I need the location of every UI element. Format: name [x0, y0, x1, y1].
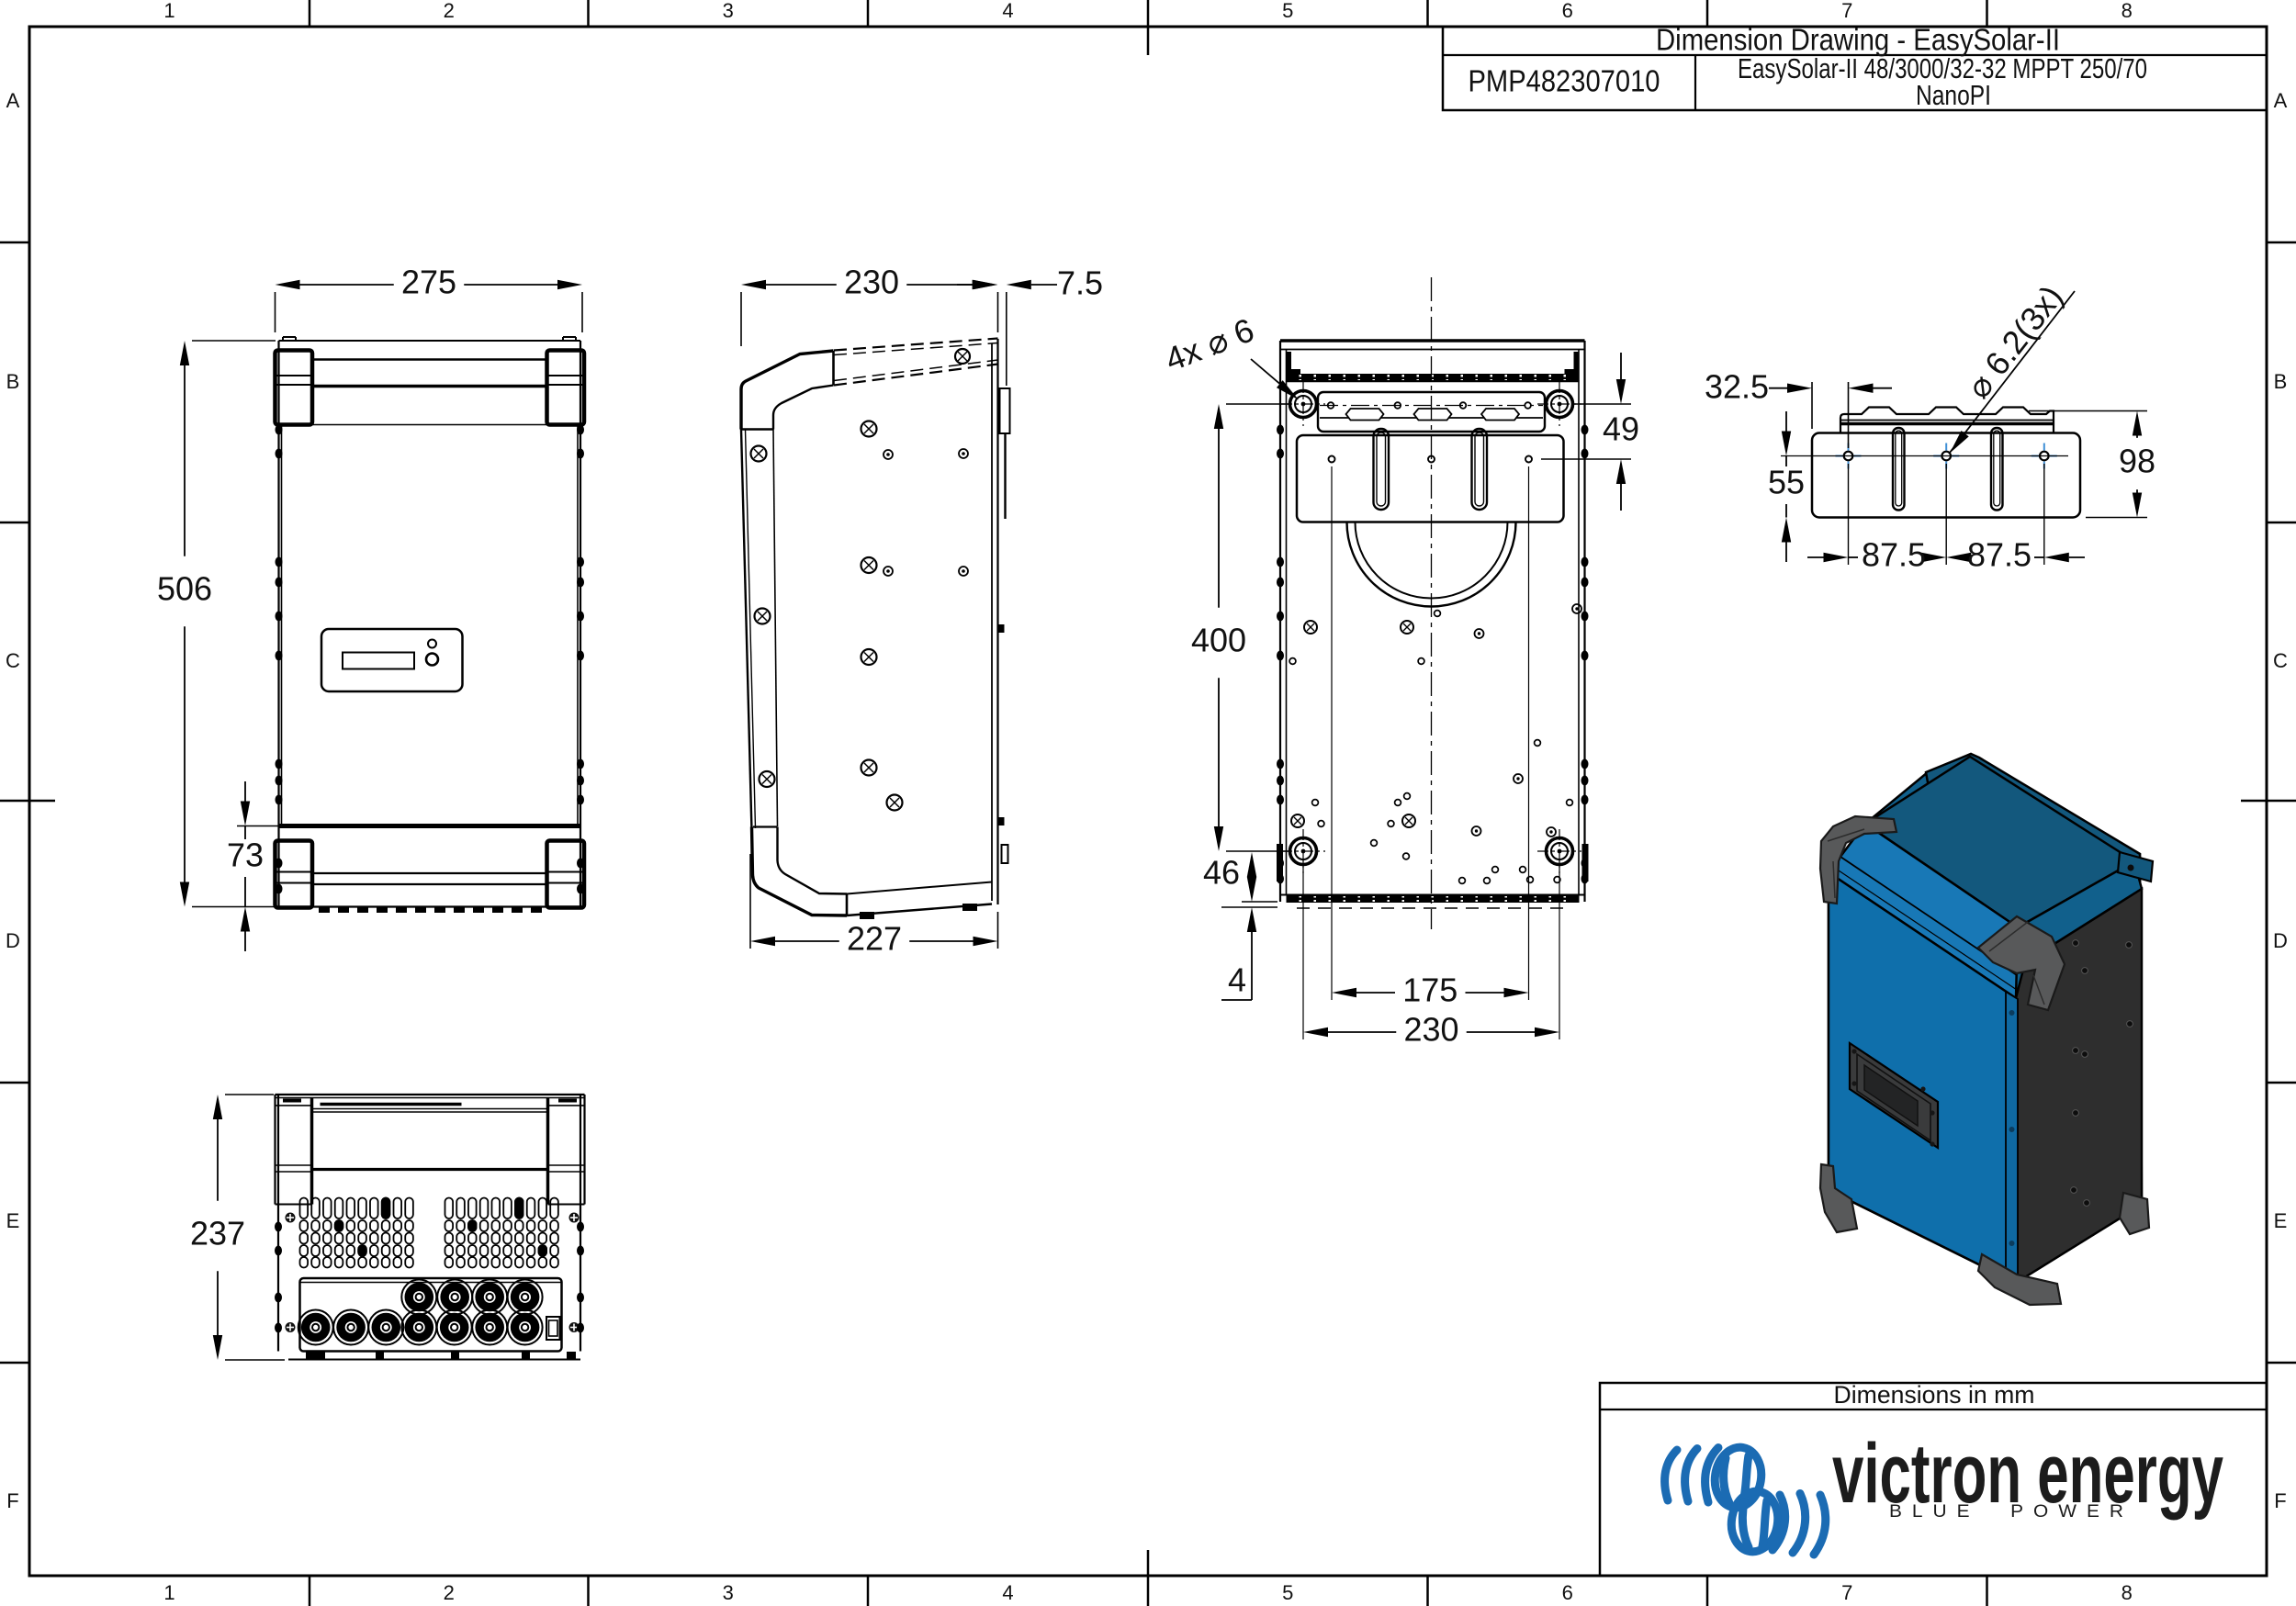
svg-text:NanoPI: NanoPI	[1916, 79, 1991, 111]
svg-text:8: 8	[2122, 0, 2133, 22]
svg-text:1: 1	[163, 0, 174, 22]
svg-text:5: 5	[1282, 0, 1293, 22]
svg-text:237: 237	[190, 1215, 245, 1252]
svg-text:400: 400	[1191, 622, 1246, 659]
svg-text:87.5: 87.5	[1862, 536, 1926, 574]
svg-text:A: A	[6, 89, 20, 112]
svg-text:A: A	[2274, 89, 2288, 112]
svg-text:Dimension Drawing - EasySolar-: Dimension Drawing - EasySolar-II	[1656, 23, 2060, 57]
svg-text:7: 7	[1841, 0, 1852, 22]
svg-text:1: 1	[163, 1581, 174, 1604]
svg-text:230: 230	[1403, 1011, 1458, 1049]
svg-text:E: E	[6, 1209, 20, 1232]
svg-text:BLUE POWER: BLUE POWER	[1889, 1502, 2133, 1522]
svg-text:175: 175	[1402, 971, 1458, 1009]
svg-text:2: 2	[444, 0, 455, 22]
svg-text:87.5: 87.5	[1967, 536, 2032, 574]
svg-text:C: C	[6, 649, 20, 672]
svg-text:3: 3	[723, 1581, 734, 1604]
svg-text:98: 98	[2119, 443, 2155, 480]
svg-text:55: 55	[1768, 464, 1805, 501]
svg-text:7.5: 7.5	[1057, 264, 1103, 302]
svg-text:5: 5	[1282, 1581, 1293, 1604]
svg-text:506: 506	[157, 570, 212, 608]
svg-text:2: 2	[444, 1581, 455, 1604]
svg-text:F: F	[6, 1489, 18, 1512]
svg-text:E: E	[2274, 1209, 2288, 1232]
svg-text:4: 4	[1002, 1581, 1013, 1604]
svg-text:8: 8	[2122, 1581, 2133, 1604]
svg-text:Dimensions in mm: Dimensions in mm	[1834, 1381, 2035, 1409]
svg-text:275: 275	[401, 264, 456, 301]
svg-text:4: 4	[1002, 0, 1013, 22]
svg-text:230: 230	[844, 264, 899, 301]
svg-text:32.5: 32.5	[1705, 368, 1769, 406]
svg-text:73: 73	[227, 837, 264, 874]
svg-text:D: D	[6, 929, 20, 952]
svg-text:3: 3	[723, 0, 734, 22]
svg-text:PMP482307010: PMP482307010	[1469, 64, 1660, 98]
svg-text:6: 6	[1562, 1581, 1573, 1604]
svg-text:D: D	[2273, 929, 2288, 952]
svg-text:6: 6	[1562, 0, 1573, 22]
svg-text:B: B	[2274, 370, 2288, 393]
svg-text:46: 46	[1203, 854, 1240, 892]
svg-text:4: 4	[1228, 961, 1246, 999]
svg-text:227: 227	[847, 920, 902, 958]
svg-text:49: 49	[1603, 410, 1639, 448]
svg-text:7: 7	[1841, 1581, 1852, 1604]
svg-text:B: B	[6, 370, 20, 393]
svg-text:F: F	[2274, 1489, 2286, 1512]
svg-text:C: C	[2273, 649, 2288, 672]
